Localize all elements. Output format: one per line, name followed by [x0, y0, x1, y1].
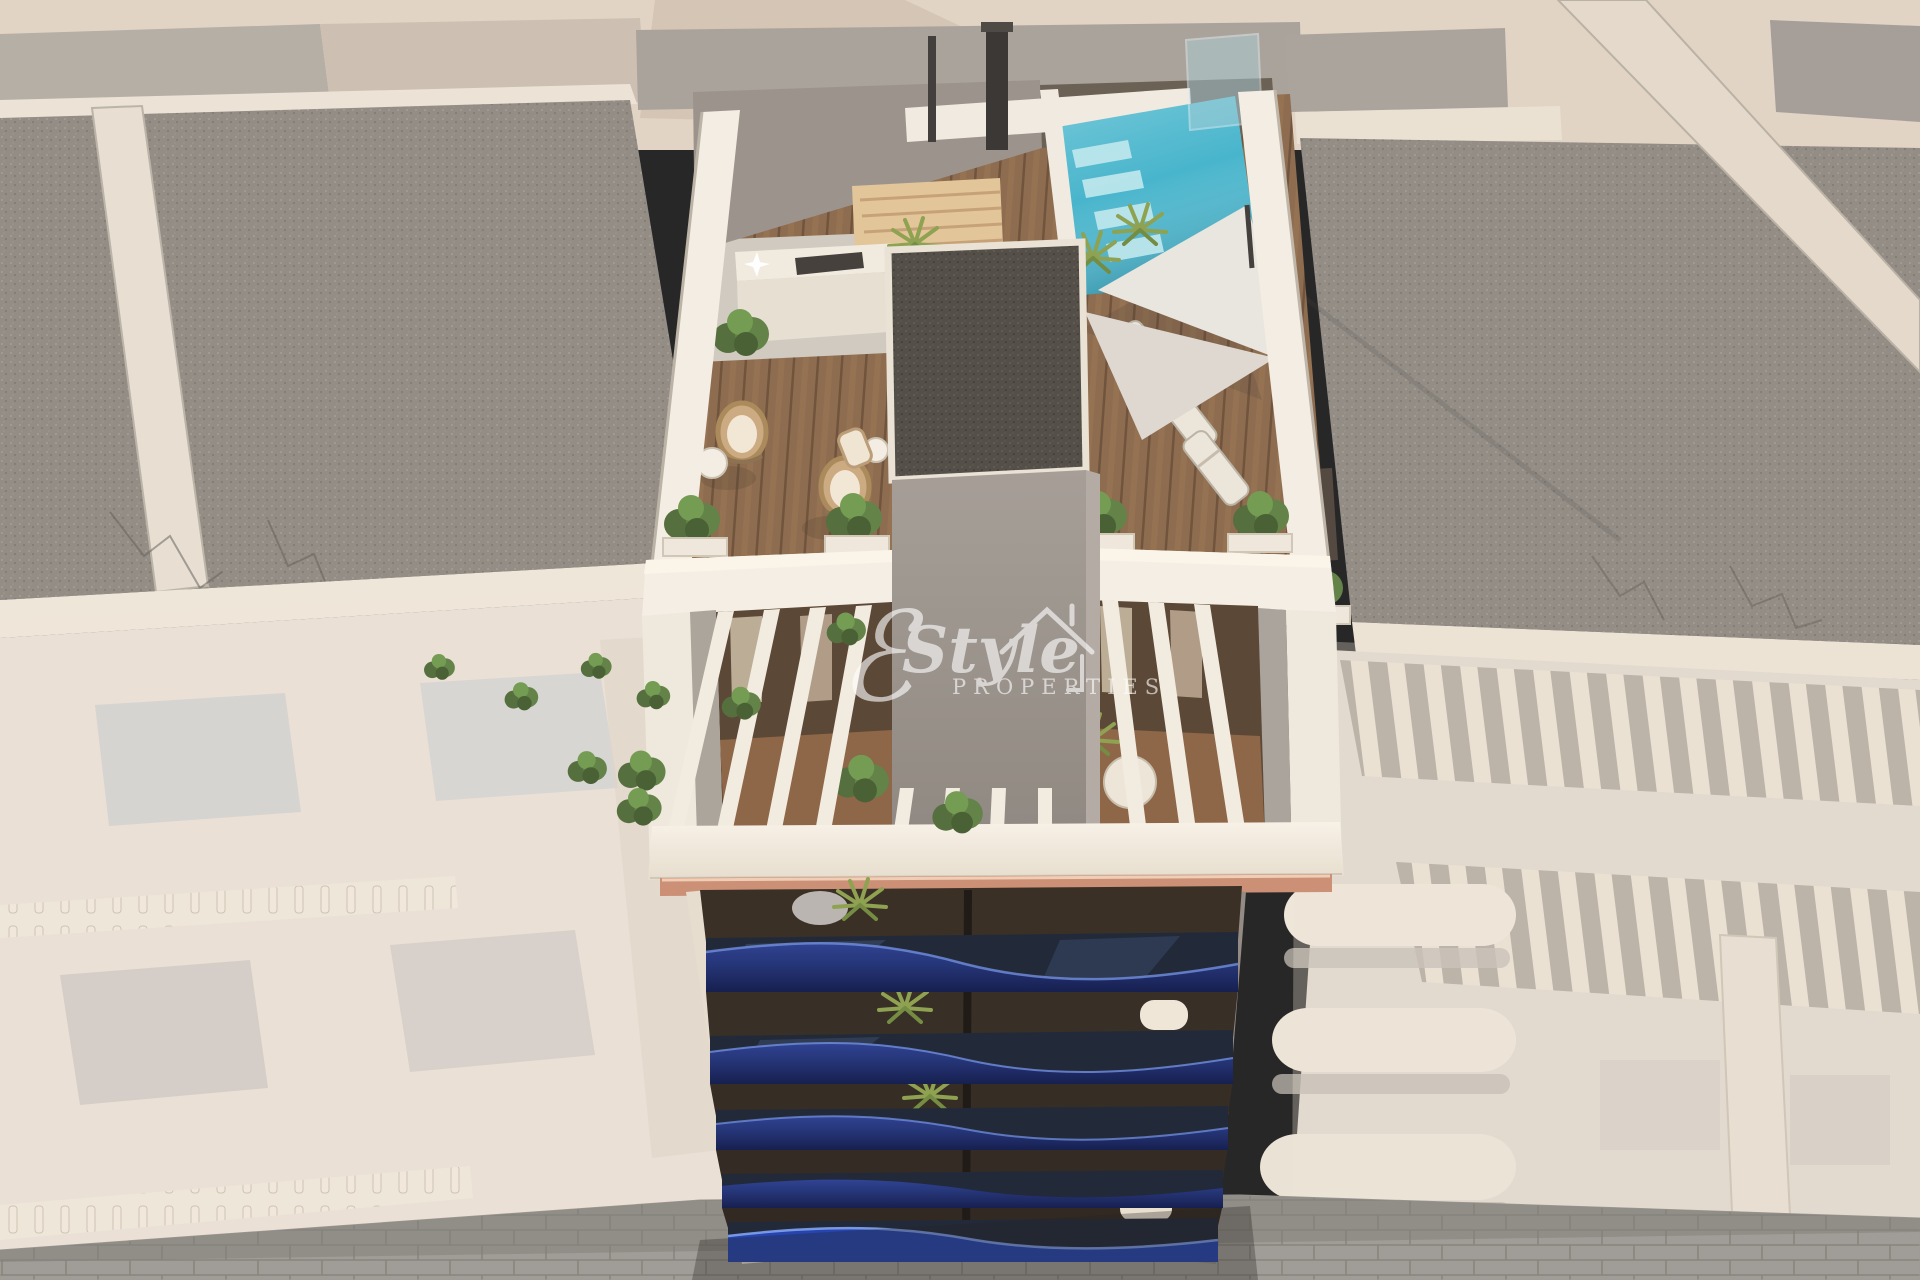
- render-scene: ℰ Style PROPERTIES: [0, 0, 1920, 1280]
- light-overlay: [0, 0, 1920, 1280]
- architectural-render: ℰ Style PROPERTIES: [0, 0, 1920, 1280]
